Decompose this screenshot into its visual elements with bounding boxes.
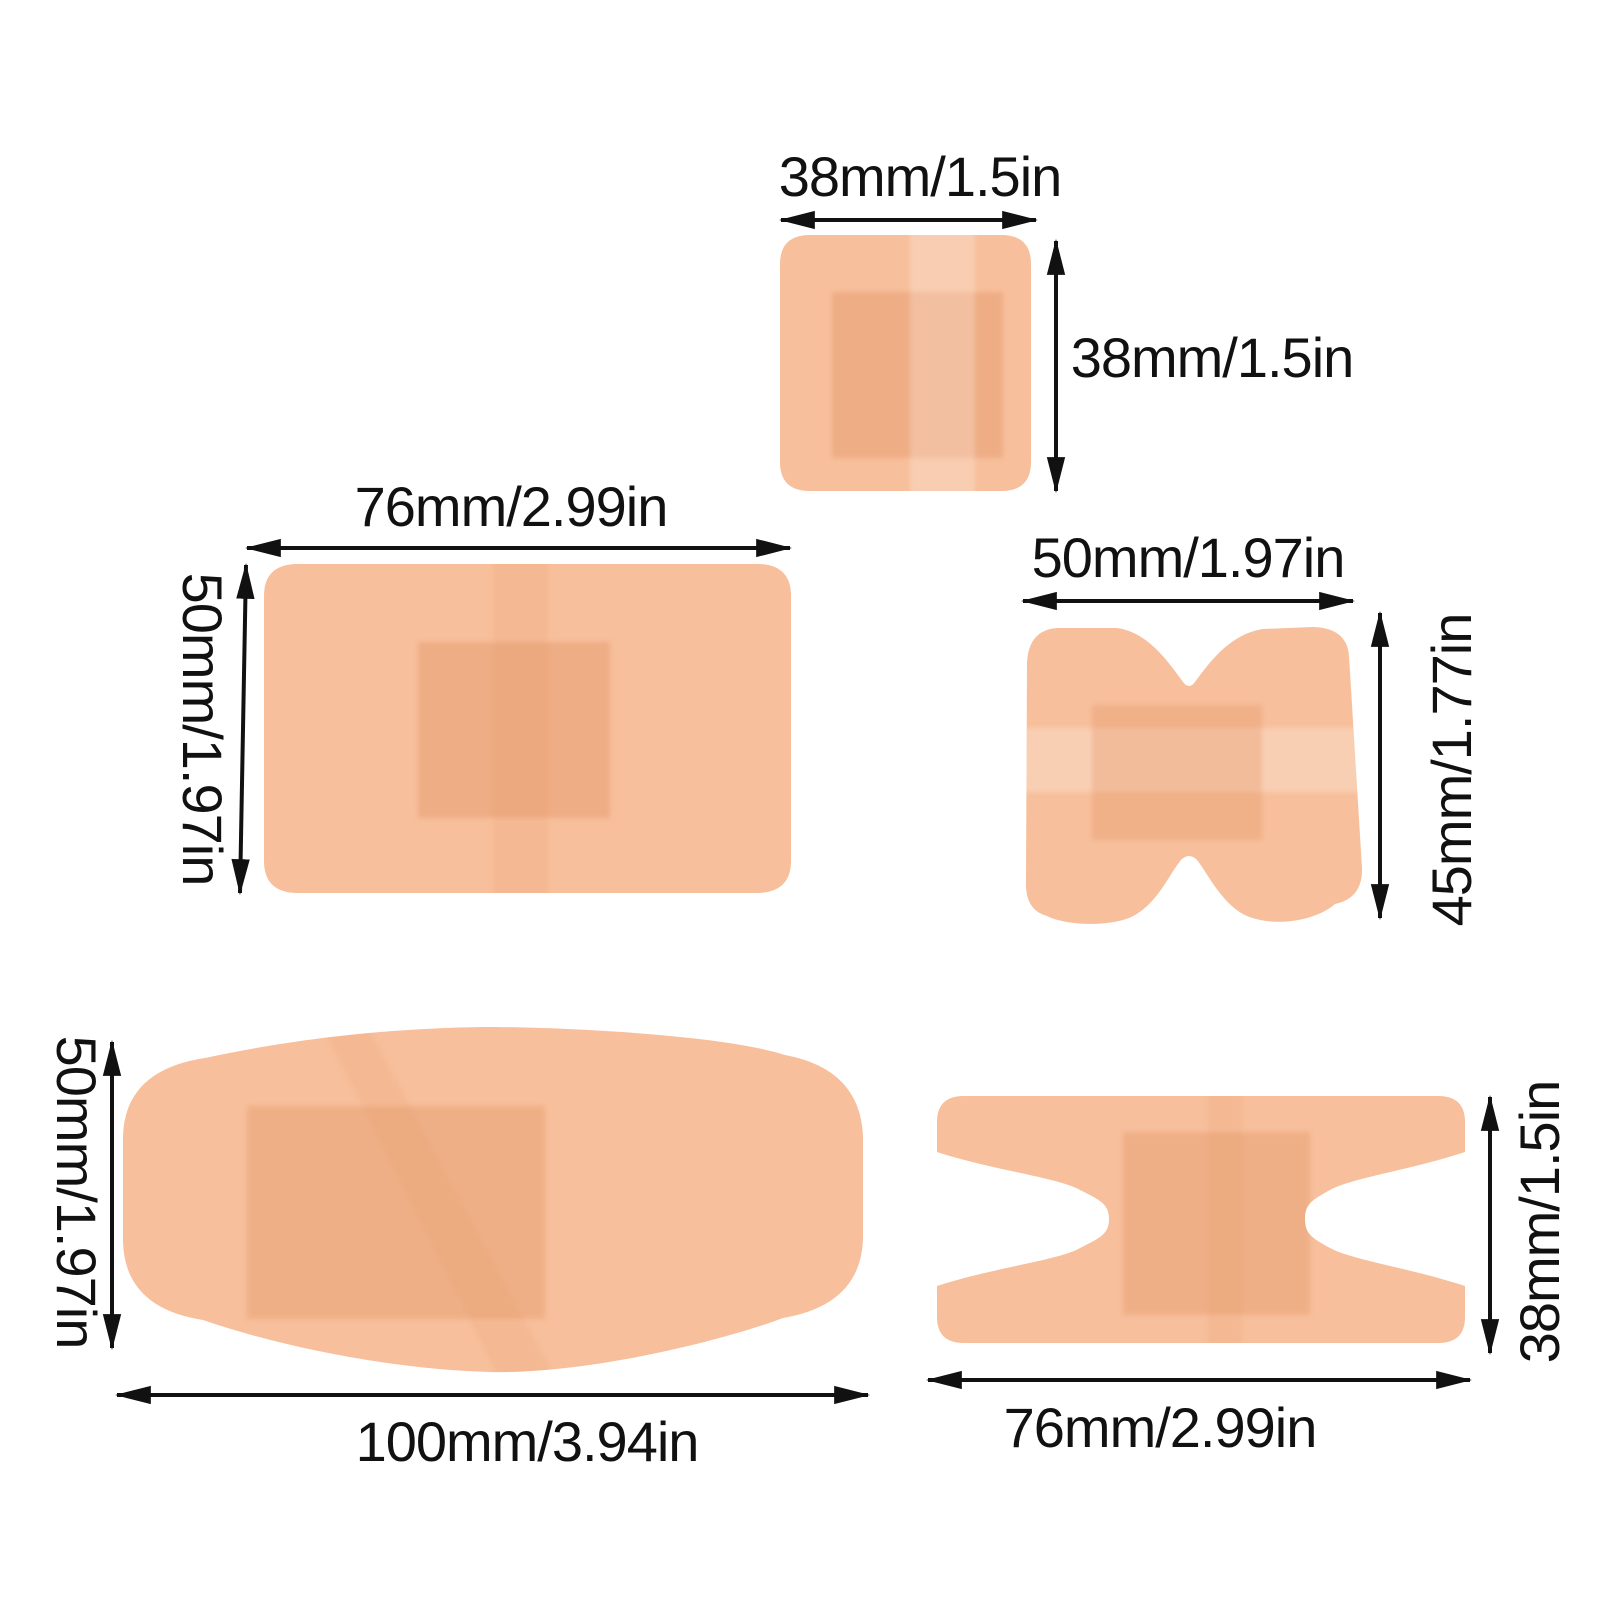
- rectangle-height-label: 50mm/1.97in: [174, 573, 230, 886]
- knuckle-width-label: 76mm/2.99in: [1004, 1400, 1317, 1456]
- square-height-label: 38mm/1.5in: [1071, 330, 1354, 386]
- rectangle-width-label: 76mm/2.99in: [355, 479, 668, 535]
- knuckle-height-label: 38mm/1.5in: [1512, 1081, 1568, 1364]
- knuckle-bandage: [937, 1088, 1465, 1351]
- large-rectangle-bandage: [123, 1022, 863, 1378]
- butterfly-bandage-pad: [1092, 705, 1262, 840]
- butterfly-height-label: 45mm/1.77in: [1424, 614, 1480, 927]
- large-rectangle-height-label: 50mm/1.97in: [48, 1036, 104, 1349]
- butterfly-bandage: [1013, 627, 1368, 924]
- rectangle-height-arrow: [240, 565, 246, 893]
- square-bandage-strip: [910, 229, 975, 497]
- square-bandage: [780, 229, 1031, 497]
- rectangle-bandage-strip: [493, 558, 548, 899]
- diagram-canvas: [0, 0, 1600, 1600]
- knuckle-bandage-strip: [1208, 1088, 1242, 1351]
- butterfly-width-label: 50mm/1.97in: [1032, 530, 1345, 586]
- large-rectangle-width-label: 100mm/3.94in: [356, 1414, 699, 1470]
- bandage-size-diagram: 38mm/1.5in 38mm/1.5in 76mm/2.99in 50mm/1…: [0, 0, 1600, 1600]
- rectangle-bandage: [264, 558, 791, 899]
- square-width-label: 38mm/1.5in: [779, 149, 1062, 205]
